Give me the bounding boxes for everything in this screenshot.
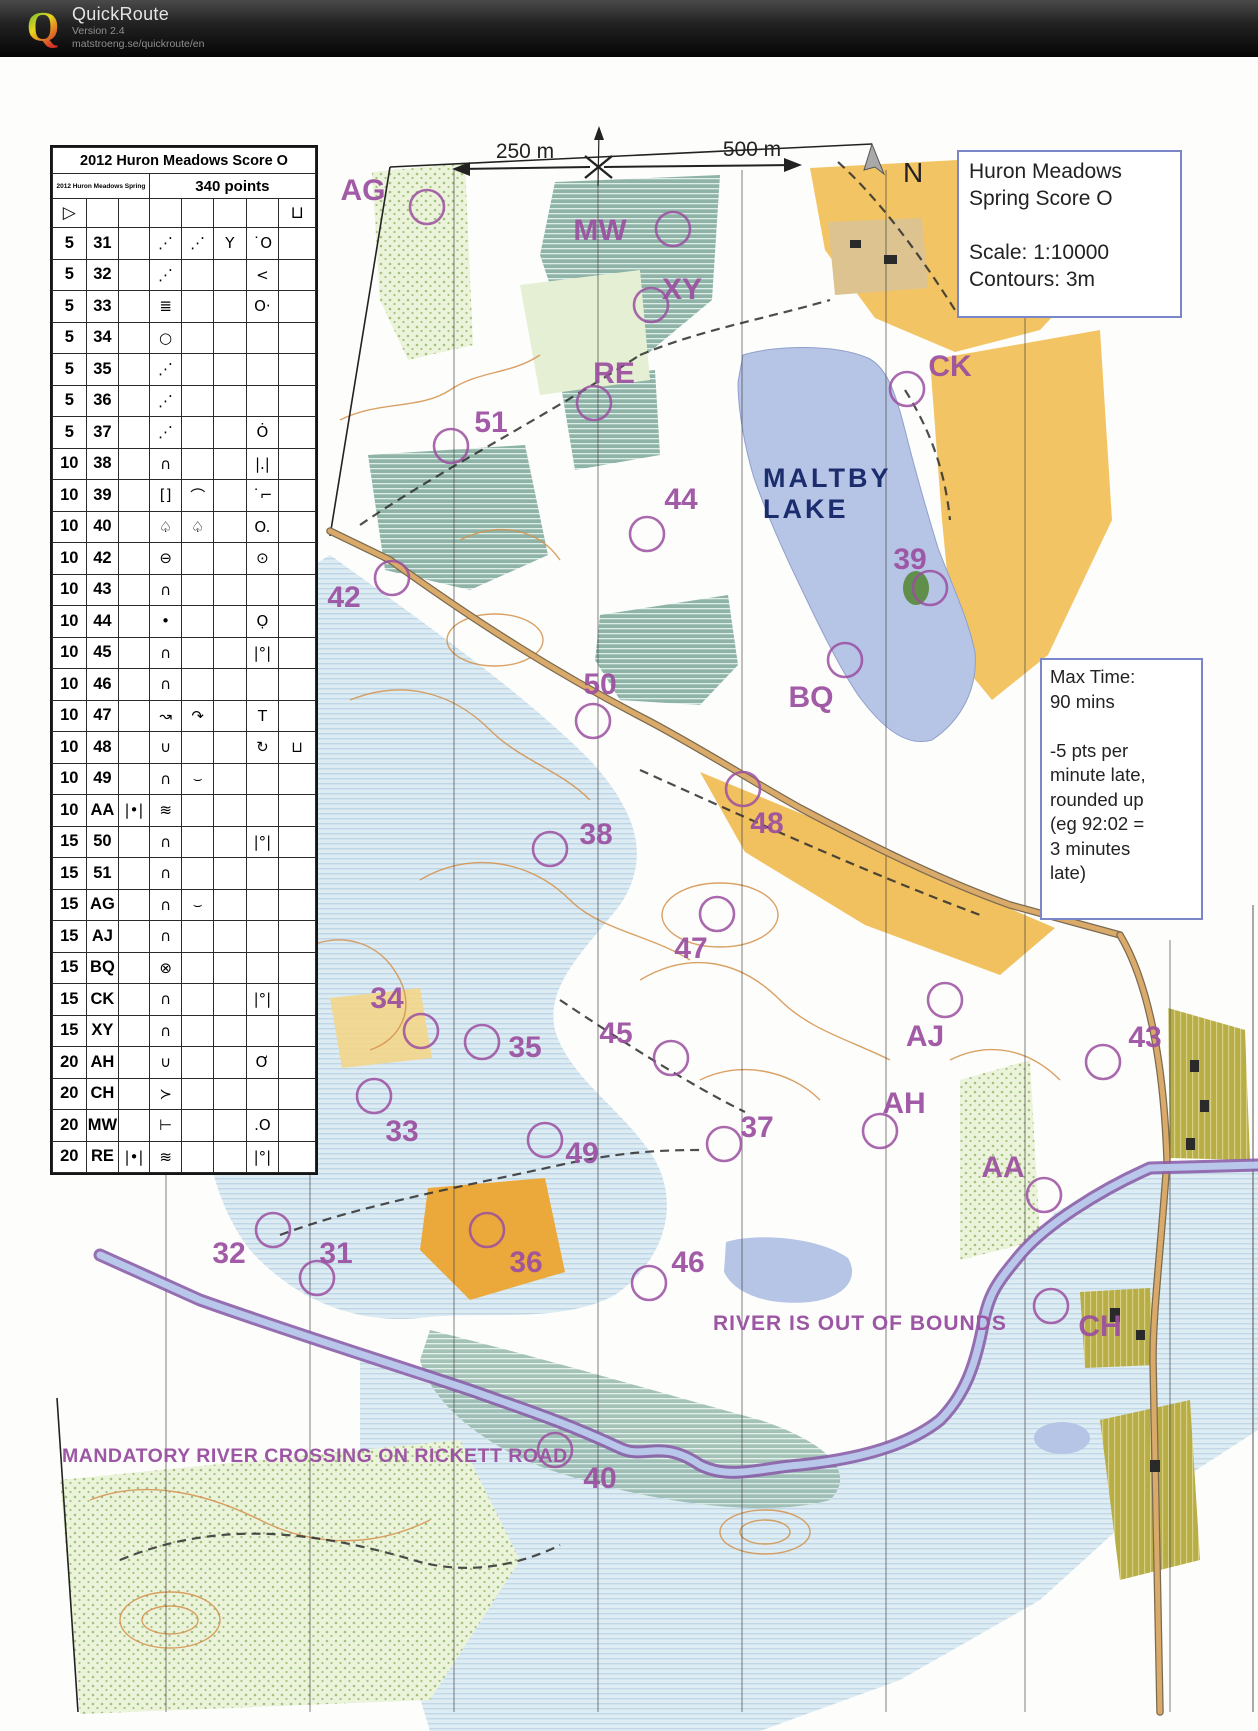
control-pts-cell: 15 — [53, 889, 87, 921]
control-symbol-cell: ⊙ — [246, 543, 279, 575]
control-symbol-cell — [119, 291, 150, 323]
control-pts-cell: 10 — [53, 732, 87, 764]
lake-label-line2: LAKE — [763, 494, 849, 524]
control-symbol-cell: ⋰ — [149, 354, 182, 386]
max-time-line: minute late, — [1050, 763, 1193, 788]
control-symbol-cell — [214, 889, 247, 921]
control-code-cell: 37 — [86, 417, 119, 449]
control-symbol-cell — [279, 480, 316, 512]
control-pts-cell: 10 — [53, 700, 87, 732]
control-symbol-cell — [119, 637, 150, 669]
control-pts-cell: 15 — [53, 1015, 87, 1047]
control-pts-cell: 5 — [53, 417, 87, 449]
control-symbol-cell: |°| — [246, 984, 279, 1016]
control-label-46: 46 — [671, 1246, 704, 1279]
app-title: QuickRoute — [72, 5, 205, 24]
control-label-49: 49 — [565, 1137, 598, 1170]
refreshment-cup-icon: ⊔ — [279, 199, 316, 228]
control-code-cell: 31 — [86, 228, 119, 260]
control-card-row-CH: 20CH≻ — [53, 1078, 316, 1110]
control-symbol-cell — [279, 1141, 316, 1173]
control-card-row-34: 534○ — [53, 322, 316, 354]
control-symbol-cell — [119, 921, 150, 953]
control-card-row-BQ: 15BQ⊗ — [53, 952, 316, 984]
control-pts-cell: 10 — [53, 480, 87, 512]
control-card-row-33: 533≣O· — [53, 291, 316, 323]
control-pts-cell: 5 — [53, 322, 87, 354]
control-card-row-46: 1046∩ — [53, 669, 316, 701]
pond-small — [1034, 1422, 1090, 1454]
control-symbol-cell — [279, 385, 316, 417]
control-label-38: 38 — [579, 818, 612, 851]
control-card-row-48: 1048∪↻⊔ — [53, 732, 316, 764]
control-symbol-cell — [119, 480, 150, 512]
control-card-table: 2012 Huron Meadows Score O 2012 Huron Me… — [52, 147, 316, 1173]
control-code-cell: 40 — [86, 511, 119, 543]
control-label-44: 44 — [664, 483, 698, 516]
control-symbol-cell — [119, 984, 150, 1016]
control-label-AG: AG — [341, 174, 386, 207]
control-label-AA: AA — [981, 1151, 1024, 1184]
control-pts-cell: 5 — [53, 259, 87, 291]
control-symbol-cell — [214, 858, 247, 890]
control-code-cell: 48 — [86, 732, 119, 764]
control-label-CH: CH — [1078, 1310, 1121, 1343]
app-url[interactable]: matstroeng.se/quickroute/en — [72, 39, 205, 50]
control-code-cell: 46 — [86, 669, 119, 701]
control-symbol-cell: ≻ — [149, 1078, 182, 1110]
control-symbol-cell: ↝ — [149, 700, 182, 732]
start-triangle-icon: ▷ — [53, 199, 87, 228]
control-pts-cell: 5 — [53, 385, 87, 417]
control-pts-cell: 10 — [53, 606, 87, 638]
control-symbol-cell: ∩ — [149, 448, 182, 480]
card-title: 2012 Huron Meadows Score O — [53, 148, 316, 174]
control-symbol-cell — [279, 700, 316, 732]
control-symbol-cell — [214, 1110, 247, 1142]
control-symbol-cell — [214, 511, 247, 543]
control-symbol-cell — [279, 543, 316, 575]
control-card-row-40: 1040♤♤O. — [53, 511, 316, 543]
control-symbol-cell — [214, 322, 247, 354]
max-time-line: late) — [1050, 861, 1193, 886]
control-card-row-MW: 20MW⊢.O — [53, 1110, 316, 1142]
control-symbol-cell — [182, 606, 214, 638]
control-code-cell: 32 — [86, 259, 119, 291]
max-time-line: -5 pts per — [1050, 739, 1193, 764]
control-symbol-cell — [119, 448, 150, 480]
control-symbol-cell — [214, 763, 247, 795]
control-symbol-cell: • — [149, 606, 182, 638]
control-symbol-cell — [214, 921, 247, 953]
control-symbol-cell — [182, 795, 214, 827]
control-label-37: 37 — [740, 1111, 773, 1144]
control-symbol-cell: ∩ — [149, 858, 182, 890]
control-card-row-38: 1038∩|.| — [53, 448, 316, 480]
control-symbol-cell — [119, 574, 150, 606]
control-symbol-cell — [279, 1078, 316, 1110]
control-pts-cell: 5 — [53, 354, 87, 386]
control-symbol-cell — [279, 322, 316, 354]
control-code-cell: 43 — [86, 574, 119, 606]
control-code-cell: XY — [86, 1015, 119, 1047]
control-label-AH: AH — [882, 1087, 925, 1120]
control-symbol-cell — [119, 669, 150, 701]
lake-island — [903, 571, 929, 605]
max-time-line: rounded up — [1050, 788, 1193, 813]
control-label-34: 34 — [370, 982, 404, 1015]
control-card-row-AJ: 15AJ∩ — [53, 921, 316, 953]
control-symbol-cell — [182, 1141, 214, 1173]
control-symbol-cell — [246, 858, 279, 890]
control-card-row-CK: 15CK∩|°| — [53, 984, 316, 1016]
control-symbol-cell — [119, 606, 150, 638]
control-symbol-cell — [246, 322, 279, 354]
control-symbol-cell — [119, 952, 150, 984]
control-symbol-cell — [279, 354, 316, 386]
control-label-RE: RE — [593, 357, 635, 390]
control-symbol-cell — [214, 417, 247, 449]
control-symbol-cell — [279, 637, 316, 669]
control-code-cell: 33 — [86, 291, 119, 323]
max-time-line: Max Time: — [1050, 665, 1193, 690]
control-symbol-cell: ∩ — [149, 574, 182, 606]
control-pts-cell: 10 — [53, 574, 87, 606]
control-pts-cell: 10 — [53, 669, 87, 701]
control-symbol-cell: ∩ — [149, 637, 182, 669]
control-label-51: 51 — [474, 406, 507, 439]
control-symbol-cell — [214, 480, 247, 512]
control-symbol-cell: ∩ — [149, 669, 182, 701]
control-symbol-cell: Y — [214, 228, 247, 260]
control-code-cell: 47 — [86, 700, 119, 732]
control-symbol-cell: ⊢ — [149, 1110, 182, 1142]
control-symbol-cell: ⋰ — [149, 385, 182, 417]
control-symbol-cell: ⋰ — [149, 228, 182, 260]
max-time-line: (eg 92:02 = — [1050, 812, 1193, 837]
control-symbol-cell — [279, 606, 316, 638]
control-code-cell: CH — [86, 1078, 119, 1110]
control-symbol-cell — [246, 1015, 279, 1047]
control-pts-cell: 15 — [53, 858, 87, 890]
control-symbol-cell — [214, 1078, 247, 1110]
control-code-cell: MW — [86, 1110, 119, 1142]
card-title-row: 2012 Huron Meadows Score O — [53, 148, 316, 174]
control-code-cell: 50 — [86, 826, 119, 858]
map-scale: Scale: 1:10000 — [969, 239, 1170, 266]
control-symbol-cell: |.| — [246, 448, 279, 480]
control-code-cell: 44 — [86, 606, 119, 638]
control-symbol-cell — [182, 574, 214, 606]
control-symbol-cell — [119, 700, 150, 732]
control-symbol-cell — [182, 858, 214, 890]
control-code-cell: CK — [86, 984, 119, 1016]
map-title-box: Huron Meadows Spring Score O Scale: 1:10… — [957, 150, 1182, 318]
control-symbol-cell — [119, 322, 150, 354]
control-code-cell: AA — [86, 795, 119, 827]
control-symbol-cell: ∪ — [149, 1047, 182, 1079]
control-symbol-cell — [214, 795, 247, 827]
control-symbol-cell — [214, 1047, 247, 1079]
control-card-row-49: 1049∩⌣ — [53, 763, 316, 795]
app-version: Version 2.4 — [72, 26, 205, 37]
control-card-row-44: 1044•Ọ — [53, 606, 316, 638]
control-symbol-cell — [279, 984, 316, 1016]
control-card-row-42: 1042⊖⊙ — [53, 543, 316, 575]
control-symbol-cell — [119, 543, 150, 575]
control-card-row-45: 1045∩|°| — [53, 637, 316, 669]
control-code-cell: 36 — [86, 385, 119, 417]
control-pts-cell: 10 — [53, 543, 87, 575]
control-symbol-cell — [182, 637, 214, 669]
control-symbol-cell: ≋ — [149, 1141, 182, 1173]
control-symbol-cell — [279, 763, 316, 795]
control-symbol-cell: O. — [246, 511, 279, 543]
control-card-row-37: 537⋰Ȯ — [53, 417, 316, 449]
control-symbol-cell: ⌣ — [182, 889, 214, 921]
control-label-48: 48 — [750, 807, 783, 840]
control-symbol-cell — [279, 259, 316, 291]
control-symbol-cell: ∩ — [149, 921, 182, 953]
control-symbol-cell — [182, 259, 214, 291]
control-symbol-cell — [214, 984, 247, 1016]
control-label-CK: CK — [928, 350, 972, 383]
control-symbol-cell — [119, 228, 150, 260]
control-pts-cell: 10 — [53, 637, 87, 669]
control-symbol-cell — [246, 385, 279, 417]
control-symbol-cell — [119, 763, 150, 795]
control-pts-cell: 20 — [53, 1078, 87, 1110]
control-symbol-cell — [182, 669, 214, 701]
control-symbol-cell: T — [246, 700, 279, 732]
mandatory-crossing-note: MANDATORY RIVER CROSSING ON RICKETT ROAD — [62, 1445, 568, 1467]
control-symbol-cell — [279, 795, 316, 827]
control-symbol-cell — [214, 669, 247, 701]
control-card-row-39: 1039[]⌒˙⌐ — [53, 480, 316, 512]
control-card-row-RE: 20RE|•|≋|°| — [53, 1141, 316, 1173]
quickroute-logo-icon: Q — [22, 5, 64, 51]
control-symbol-cell: Ơ — [246, 1047, 279, 1079]
control-symbol-cell — [182, 952, 214, 984]
control-symbol-cell — [279, 826, 316, 858]
control-symbol-cell: O· — [246, 291, 279, 323]
control-symbol-cell — [182, 984, 214, 1016]
control-label-32: 32 — [212, 1237, 245, 1270]
control-symbol-cell: |°| — [246, 1141, 279, 1173]
control-card-row-50: 1550∩|°| — [53, 826, 316, 858]
control-code-cell: 35 — [86, 354, 119, 386]
control-symbol-cell — [119, 858, 150, 890]
control-symbol-cell: ⊔ — [279, 732, 316, 764]
control-symbol-cell — [182, 1078, 214, 1110]
control-pts-cell: 10 — [53, 763, 87, 795]
control-symbol-cell — [182, 543, 214, 575]
control-symbol-cell: ○ — [149, 322, 182, 354]
control-card-row-47: 1047↝↷T — [53, 700, 316, 732]
control-symbol-cell — [214, 952, 247, 984]
control-symbol-cell — [214, 1141, 247, 1173]
control-pts-cell: 5 — [53, 291, 87, 323]
control-card-row-35: 535⋰ — [53, 354, 316, 386]
control-label-XY: XY — [662, 273, 702, 306]
control-symbol-cell — [182, 1047, 214, 1079]
control-symbol-cell — [279, 228, 316, 260]
control-symbol-cell: |•| — [119, 1141, 150, 1173]
control-code-cell: 49 — [86, 763, 119, 795]
card-start-row: ▷ ⊔ — [53, 199, 316, 228]
control-symbol-cell: ↻ — [246, 732, 279, 764]
control-symbol-cell — [182, 322, 214, 354]
control-symbol-cell: ˙O — [246, 228, 279, 260]
control-symbol-cell: |•| — [119, 795, 150, 827]
control-symbol-cell: ∩ — [149, 763, 182, 795]
control-symbol-cell — [182, 385, 214, 417]
control-code-cell: 34 — [86, 322, 119, 354]
control-symbol-cell — [214, 732, 247, 764]
control-symbol-cell: ≣ — [149, 291, 182, 323]
control-symbol-cell: ⋰ — [149, 417, 182, 449]
max-time-line: 3 minutes — [1050, 837, 1193, 862]
control-symbol-cell: ≋ — [149, 795, 182, 827]
control-symbol-cell — [214, 826, 247, 858]
control-symbol-cell: .O — [246, 1110, 279, 1142]
control-symbol-cell — [119, 732, 150, 764]
control-symbol-cell — [279, 1047, 316, 1079]
control-symbol-cell — [214, 354, 247, 386]
control-code-cell: AJ — [86, 921, 119, 953]
control-symbol-cell — [119, 826, 150, 858]
control-symbol-cell — [214, 385, 247, 417]
control-card-row-36: 536⋰ — [53, 385, 316, 417]
control-symbol-cell — [279, 921, 316, 953]
control-symbol-cell — [182, 921, 214, 953]
control-symbol-cell: [] — [149, 480, 182, 512]
control-label-31: 31 — [319, 1237, 352, 1270]
control-symbol-cell — [246, 921, 279, 953]
control-code-cell: AH — [86, 1047, 119, 1079]
control-symbol-cell — [246, 889, 279, 921]
control-symbol-cell: ∩ — [149, 1015, 182, 1047]
card-event-name: 2012 Huron Meadows Spring — [53, 174, 150, 199]
scale-500-label: 500 m — [723, 138, 781, 161]
control-label-33: 33 — [385, 1115, 418, 1148]
control-symbol-cell — [214, 700, 247, 732]
control-symbol-cell — [279, 858, 316, 890]
control-symbol-cell — [182, 448, 214, 480]
control-symbol-cell — [119, 1078, 150, 1110]
card-subtitle-row: 2012 Huron Meadows Spring 340 points — [53, 174, 316, 199]
app-header: Q QuickRoute Version 2.4 matstroeng.se/q… — [0, 0, 1258, 57]
control-symbol-cell: |°| — [246, 637, 279, 669]
control-symbol-cell — [246, 795, 279, 827]
north-label: N — [903, 157, 923, 188]
control-label-50: 50 — [583, 668, 616, 701]
control-symbol-cell — [279, 952, 316, 984]
control-label-43: 43 — [1128, 1021, 1161, 1054]
control-symbol-cell — [246, 354, 279, 386]
control-symbol-cell — [246, 763, 279, 795]
control-pts-cell: 20 — [53, 1141, 87, 1173]
control-label-42: 42 — [327, 581, 360, 614]
control-pts-cell: 15 — [53, 984, 87, 1016]
control-symbol-cell — [119, 354, 150, 386]
control-symbol-cell — [246, 574, 279, 606]
control-symbol-cell: ⊗ — [149, 952, 182, 984]
control-symbol-cell — [119, 259, 150, 291]
control-symbol-cell — [214, 543, 247, 575]
control-symbol-cell — [214, 448, 247, 480]
control-label-35: 35 — [508, 1031, 541, 1064]
control-card-row-XY: 15XY∩ — [53, 1015, 316, 1047]
control-card-row-51: 1551∩ — [53, 858, 316, 890]
control-pts-cell: 15 — [53, 952, 87, 984]
control-symbol-cell — [279, 1110, 316, 1142]
control-card-row-AG: 15AG∩⌣ — [53, 889, 316, 921]
control-label-36: 36 — [509, 1246, 542, 1279]
control-symbol-cell — [119, 1015, 150, 1047]
control-symbol-cell: ˙⌐ — [246, 480, 279, 512]
control-symbol-cell — [214, 1015, 247, 1047]
control-code-cell: BQ — [86, 952, 119, 984]
control-code-cell: 42 — [86, 543, 119, 575]
control-symbol-cell — [182, 291, 214, 323]
control-code-cell: 51 — [86, 858, 119, 890]
control-symbol-cell — [279, 889, 316, 921]
control-pts-cell: 20 — [53, 1110, 87, 1142]
control-pts-cell: 10 — [53, 448, 87, 480]
control-card-row-32: 532⋰< — [53, 259, 316, 291]
control-symbol-cell — [182, 1015, 214, 1047]
max-time-line: 90 mins — [1050, 690, 1193, 715]
control-symbol-cell: < — [246, 259, 279, 291]
control-symbol-cell — [246, 952, 279, 984]
control-symbol-cell: ♤ — [182, 511, 214, 543]
control-pts-cell: 10 — [53, 795, 87, 827]
control-symbol-cell — [119, 385, 150, 417]
control-symbol-cell: ⋰ — [149, 259, 182, 291]
control-symbol-cell: ∩ — [149, 984, 182, 1016]
card-total-points: 340 points — [149, 174, 315, 199]
control-pts-cell: 20 — [53, 1047, 87, 1079]
quickroute-window: { "header": { "app_title": "QuickRoute",… — [0, 0, 1258, 1731]
control-symbol-cell — [279, 574, 316, 606]
control-symbol-cell — [182, 1110, 214, 1142]
control-symbol-cell: |°| — [246, 826, 279, 858]
lake-label-line1: MALTBY — [763, 463, 891, 493]
control-code-cell: RE — [86, 1141, 119, 1173]
map-title-line1: Huron Meadows — [969, 158, 1170, 185]
control-symbol-cell — [182, 732, 214, 764]
svg-text:Q: Q — [27, 5, 60, 51]
control-description-card: 2012 Huron Meadows Score O 2012 Huron Me… — [50, 145, 318, 1175]
control-symbol-cell — [214, 259, 247, 291]
control-card-row-AA: 10AA|•|≋ — [53, 795, 316, 827]
control-symbol-cell — [279, 448, 316, 480]
control-symbol-cell — [214, 574, 247, 606]
control-symbol-cell — [246, 669, 279, 701]
control-symbol-cell — [119, 889, 150, 921]
control-symbol-cell: ∪ — [149, 732, 182, 764]
control-symbol-cell — [182, 354, 214, 386]
control-symbol-cell — [119, 1047, 150, 1079]
control-symbol-cell: ♤ — [149, 511, 182, 543]
control-label-MW: MW — [573, 214, 627, 247]
max-time-box: Max Time:90 mins-5 pts perminute late,ro… — [1040, 658, 1203, 920]
control-pts-cell: 5 — [53, 228, 87, 260]
control-symbol-cell — [182, 417, 214, 449]
control-pts-cell: 15 — [53, 921, 87, 953]
control-code-cell: 38 — [86, 448, 119, 480]
